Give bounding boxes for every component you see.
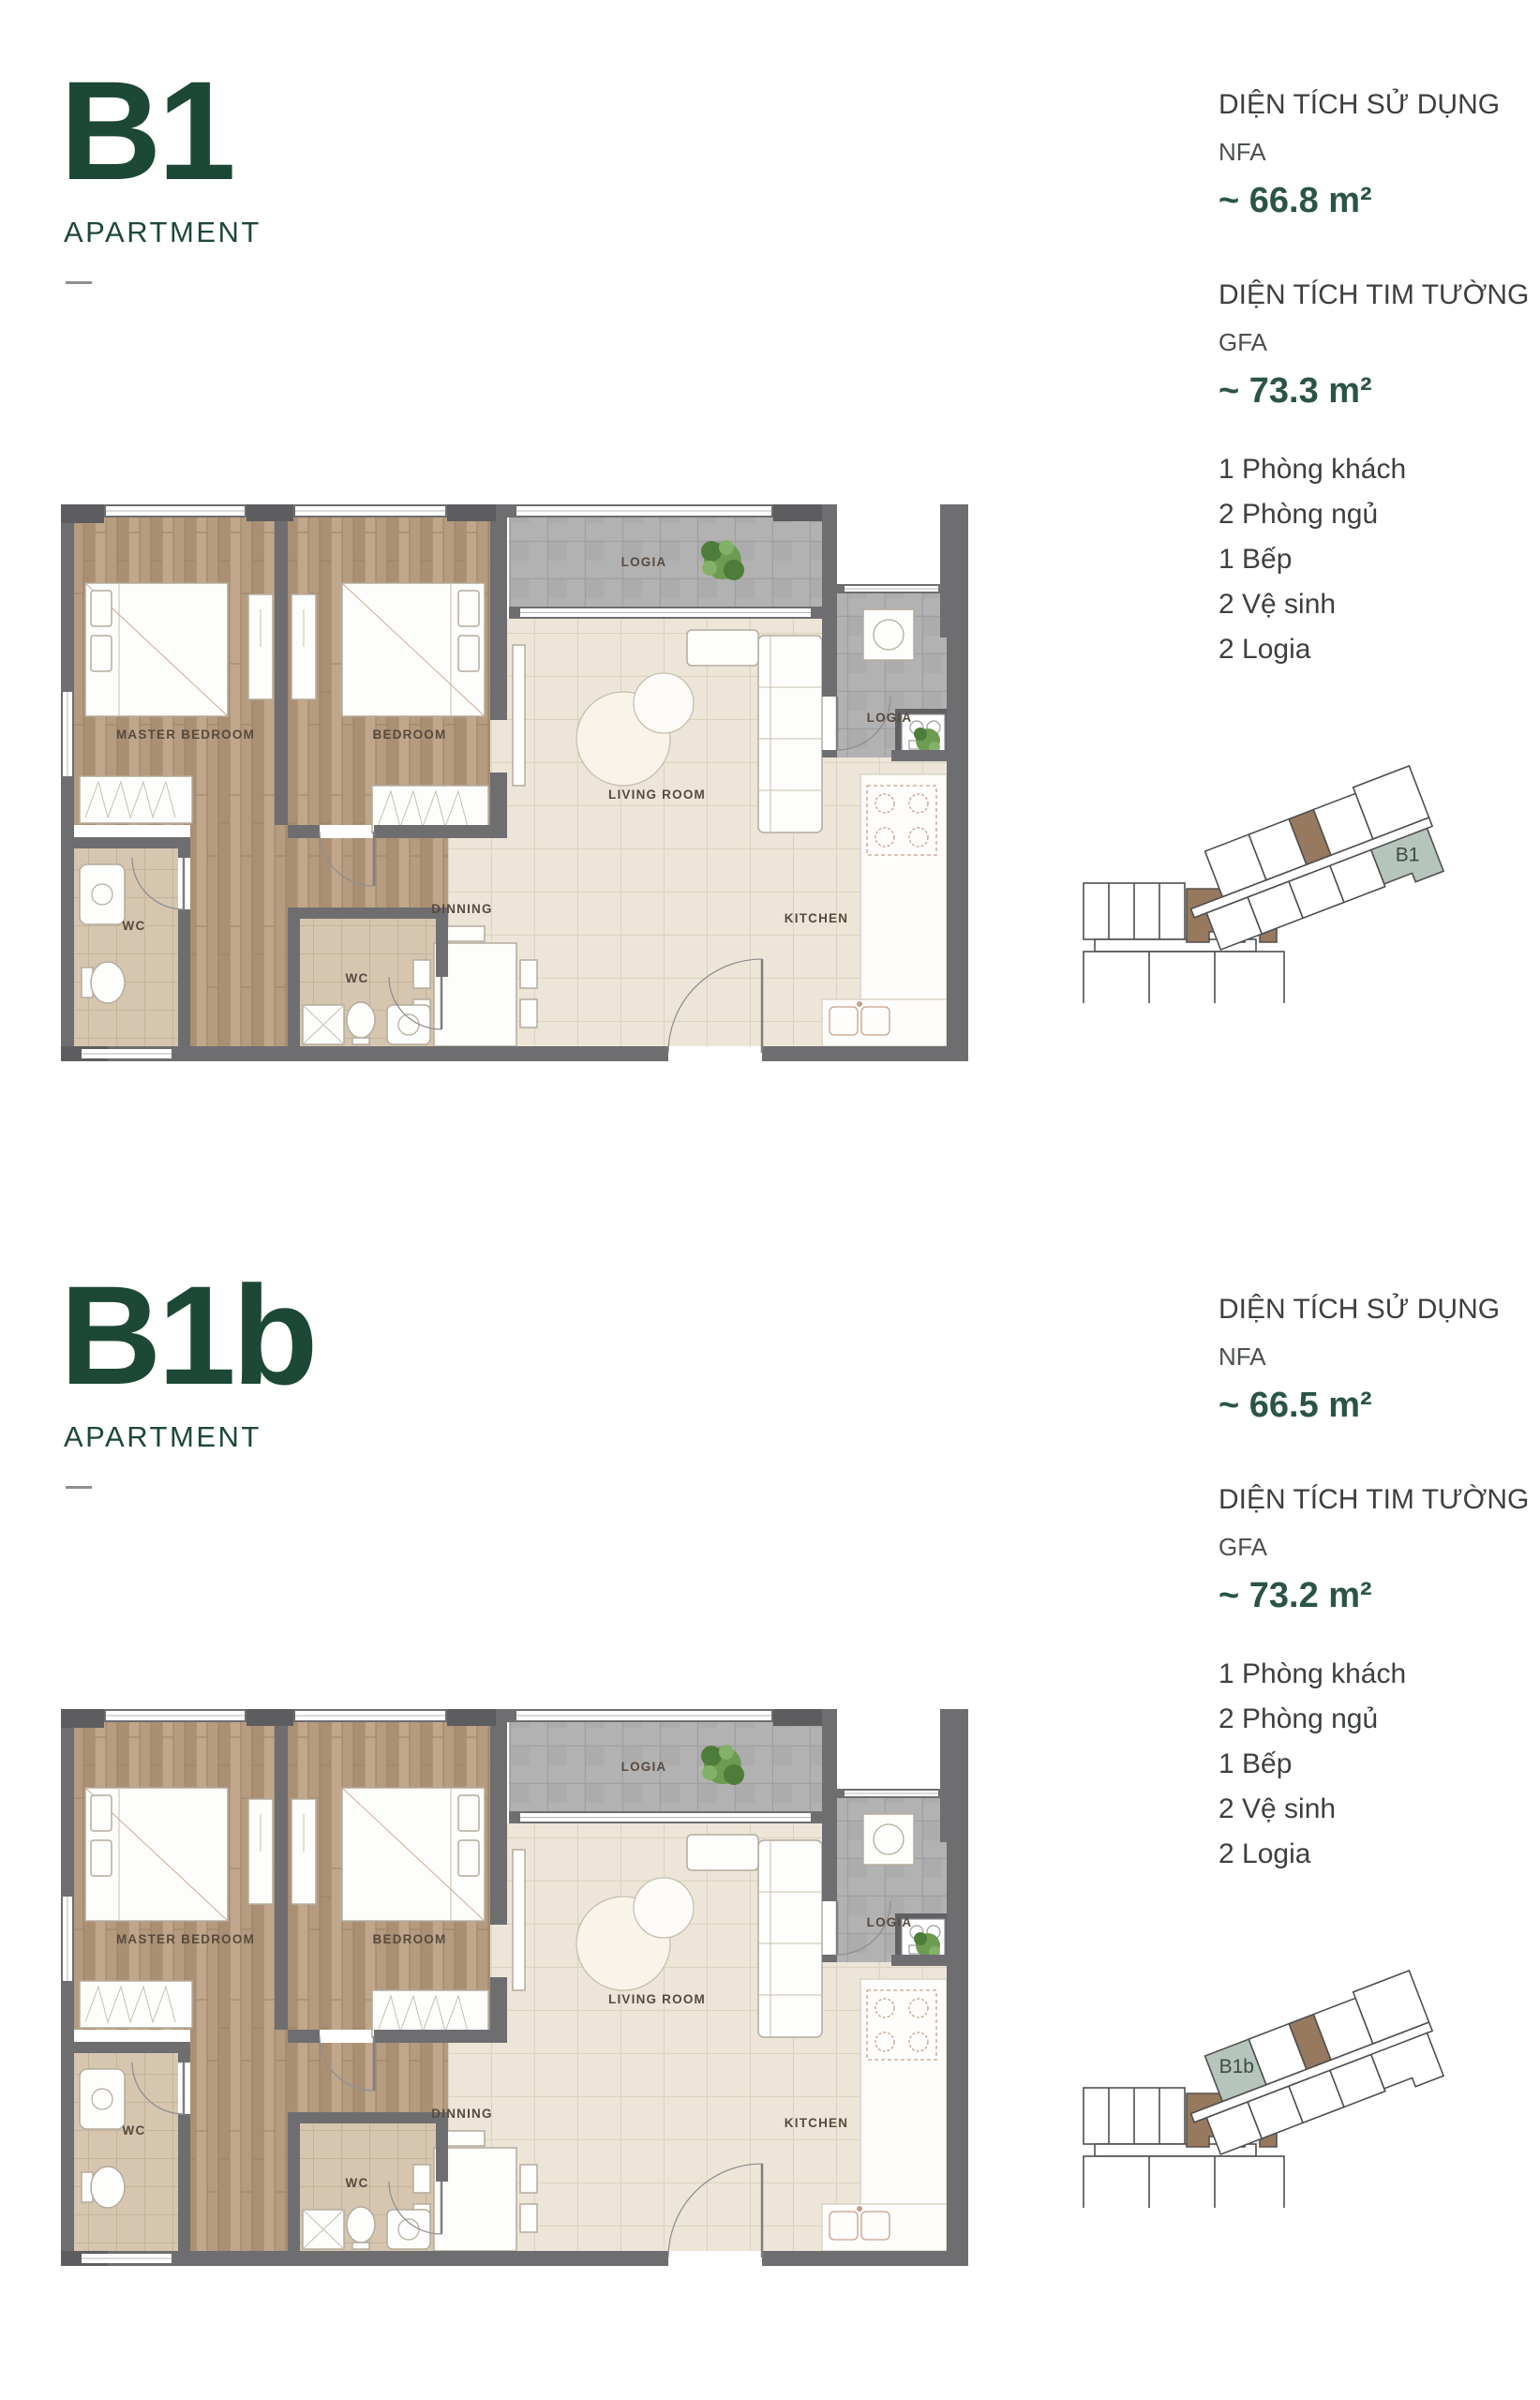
- label-kitchen: KITCHEN: [785, 2116, 848, 2130]
- room-item: 1 Bếp: [1219, 537, 1540, 582]
- keyplan: B1b: [1076, 1955, 1488, 2208]
- area-info-panel: DIỆN TÍCH SỬ DỤNG NFA ~ 66.5 m² DIỆN TÍC…: [1219, 1294, 1540, 1912]
- label-bedroom: BEDROOM: [373, 1932, 447, 1946]
- keyplan: B1: [1076, 750, 1488, 1003]
- floorplan-drawing: MASTER BEDROOM BEDROOM LOGIA LIVING ROOM…: [61, 1709, 975, 2286]
- room-item: 2 Logia: [1219, 1832, 1540, 1877]
- room-item: 2 Phòng ngủ: [1219, 1697, 1540, 1742]
- unit-section-b1b: B1b APARTMENT DIỆN TÍCH SỬ DỤNG NFA ~ 66…: [0, 1205, 1540, 2400]
- floorplan: MASTER BEDROOM BEDROOM LOGIA LIVING ROOM…: [61, 504, 975, 1081]
- brochure-page: B1 APARTMENT DIỆN TÍCH SỬ DỤNG NFA ~ 66.…: [0, 0, 1540, 2400]
- room-item: 2 Phòng ngủ: [1219, 492, 1540, 537]
- room-item: 1 Phòng khách: [1219, 1652, 1540, 1697]
- nfa-abbr: NFA: [1219, 138, 1266, 167]
- unit-code: B1: [60, 60, 232, 201]
- keyplan-unit-label: B1b: [1219, 2056, 1254, 2077]
- room-item: 1 Phòng khách: [1219, 447, 1540, 492]
- label-logia-side: LOGIA: [867, 1915, 913, 1929]
- label-logia-top: LOGIA: [621, 1760, 667, 1774]
- label-master-bedroom: MASTER BEDROOM: [116, 1932, 255, 1946]
- nfa-value: ~ 66.8 m²: [1219, 181, 1372, 221]
- title-underline: [66, 1486, 92, 1489]
- unit-section-b1: B1 APARTMENT DIỆN TÍCH SỬ DỤNG NFA ~ 66.…: [0, 0, 1540, 1195]
- room-item: 2 Vệ sinh: [1219, 582, 1540, 627]
- room-list: 1 Phòng khách 2 Phòng ngủ 1 Bếp 2 Vệ sin…: [1219, 1652, 1540, 1877]
- keyplan-unit-label: B1: [1396, 844, 1420, 865]
- label-logia-top: LOGIA: [621, 555, 667, 569]
- room-item: 2 Logia: [1219, 627, 1540, 672]
- room-item: 2 Vệ sinh: [1219, 1787, 1540, 1832]
- title-underline: [66, 281, 92, 284]
- label-dinning: DINNING: [431, 2107, 492, 2121]
- label-wc-1: WC: [123, 2123, 146, 2137]
- label-living-room: LIVING ROOM: [608, 1992, 706, 2006]
- label-living-room: LIVING ROOM: [608, 787, 706, 802]
- label-logia-side: LOGIA: [867, 711, 913, 725]
- nfa-value: ~ 66.5 m²: [1219, 1386, 1372, 1426]
- unit-type-label: APARTMENT: [64, 1420, 262, 1454]
- label-bedroom: BEDROOM: [373, 727, 447, 742]
- gfa-abbr: GFA: [1219, 1533, 1267, 1562]
- floorplan-drawing: MASTER BEDROOM BEDROOM LOGIA LIVING ROOM…: [61, 504, 975, 1081]
- label-wc-2: WC: [346, 2176, 369, 2190]
- nfa-abbr: NFA: [1219, 1342, 1266, 1372]
- keyplan-drawing-b1b: B1b: [1076, 1955, 1488, 2208]
- unit-type-label: APARTMENT: [64, 216, 262, 249]
- area-info-panel: DIỆN TÍCH SỬ DỤNG NFA ~ 66.8 m² DIỆN TÍC…: [1219, 89, 1540, 708]
- gfa-value: ~ 73.3 m²: [1219, 371, 1372, 412]
- gfa-value: ~ 73.2 m²: [1219, 1576, 1372, 1616]
- room-list: 1 Phòng khách 2 Phòng ngủ 1 Bếp 2 Vệ sin…: [1219, 447, 1540, 672]
- label-dinning: DINNING: [431, 902, 492, 916]
- unit-code: B1b: [60, 1265, 314, 1405]
- nfa-heading: DIỆN TÍCH SỬ DỤNG: [1219, 89, 1500, 121]
- label-wc-1: WC: [123, 919, 146, 933]
- gfa-abbr: GFA: [1219, 328, 1267, 357]
- label-master-bedroom: MASTER BEDROOM: [116, 727, 255, 742]
- keyplan-drawing-b1: B1: [1076, 750, 1488, 1003]
- gfa-heading: DIỆN TÍCH TIM TƯỜNG: [1219, 1484, 1529, 1516]
- label-kitchen: KITCHEN: [785, 911, 848, 925]
- label-wc-2: WC: [346, 971, 369, 985]
- gfa-heading: DIỆN TÍCH TIM TƯỜNG: [1219, 279, 1529, 311]
- room-item: 1 Bếp: [1219, 1742, 1540, 1787]
- nfa-heading: DIỆN TÍCH SỬ DỤNG: [1219, 1294, 1500, 1326]
- floorplan: MASTER BEDROOM BEDROOM LOGIA LIVING ROOM…: [61, 1709, 975, 2286]
